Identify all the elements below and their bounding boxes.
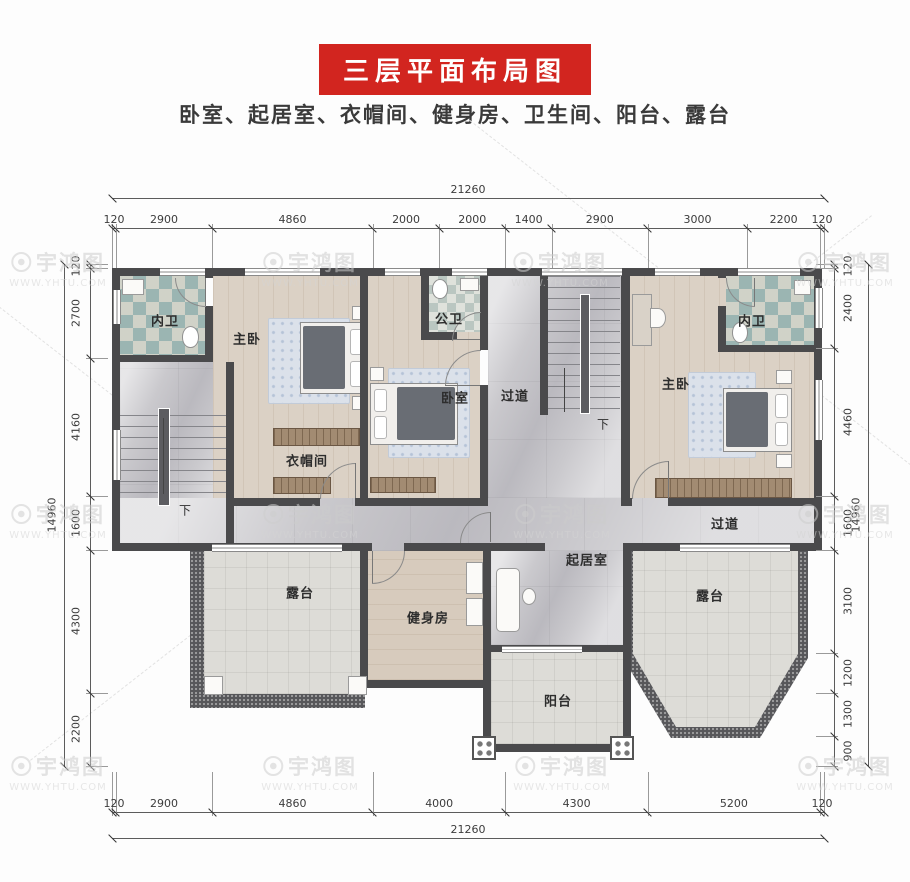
terrace-left-floor: [204, 551, 365, 694]
sink: [794, 280, 811, 295]
room-label-balcony: 阳台: [544, 691, 572, 710]
terrace-corner-post: [348, 676, 367, 695]
dim-label: 2000: [392, 213, 420, 226]
wardrobe: [273, 428, 360, 446]
room-label-hallway-vertical: 过道: [501, 386, 529, 405]
dim-label: 120: [812, 797, 833, 810]
room-label-terrace-left: 露台: [286, 583, 314, 602]
dim-label: 2400: [842, 294, 855, 322]
watermark-logo-icon: [11, 252, 31, 272]
room-label-bath-left: 内卫: [151, 311, 179, 330]
window: [160, 268, 205, 276]
dim-label: 120: [842, 255, 855, 276]
dim-label: 900: [842, 741, 855, 762]
decor: [754, 278, 755, 306]
dim-ext: [112, 224, 113, 268]
wall-segment: [355, 498, 488, 506]
dim-label: 3100: [842, 587, 855, 615]
dim-label: 21260: [451, 183, 486, 196]
dim-label: 2900: [150, 797, 178, 810]
room-label-public-bath: 公卫: [435, 309, 463, 328]
window: [212, 544, 342, 552]
decor: [726, 392, 768, 447]
wall-segment: [621, 268, 630, 498]
window: [815, 380, 823, 440]
decor: [374, 389, 387, 412]
stairs-left-arrow: [163, 418, 164, 494]
dim-line: [90, 264, 91, 766]
room-label-terrace-right: 露台: [696, 586, 724, 605]
window: [245, 268, 320, 276]
decor: [355, 463, 356, 498]
dim-ext: [648, 772, 649, 816]
wall-segment: [226, 498, 320, 506]
dim-ext: [820, 224, 821, 268]
wall-segment: [360, 551, 368, 688]
window: [680, 544, 790, 552]
dim-label: 4460: [842, 408, 855, 436]
sink: [122, 279, 144, 295]
dim-label: 21260: [451, 823, 486, 836]
balcony-column: [472, 736, 496, 760]
room-label-bedroom-mid: 卧室: [441, 388, 469, 407]
dim-label: 1400: [515, 213, 543, 226]
wall-segment: [360, 680, 491, 688]
decor: [490, 512, 491, 542]
dim-label: 4860: [278, 797, 306, 810]
dim-label: 120: [103, 797, 124, 810]
stairs-center-arrow: [564, 368, 565, 412]
dim-ext: [505, 772, 506, 816]
room-label-master-right: 主卧: [662, 374, 690, 393]
dim-label: 2900: [150, 213, 178, 226]
wall-segment: [421, 268, 429, 340]
nightstand: [370, 367, 384, 381]
dim-label: 5200: [720, 797, 748, 810]
dim-label: 2000: [458, 213, 486, 226]
dim-line: [112, 228, 824, 229]
dim-line: [64, 264, 65, 766]
decor: [205, 278, 206, 306]
dim-line: [834, 264, 835, 766]
terrace-left-parapet: [190, 551, 204, 708]
terrace-corner-post: [204, 676, 223, 695]
wall-segment: [483, 551, 491, 752]
wall-segment: [718, 345, 822, 352]
window: [655, 268, 700, 276]
terrace-left-parapet: [190, 694, 365, 708]
nightstand: [776, 454, 792, 468]
dim-line: [112, 198, 824, 199]
dim-line: [112, 838, 824, 839]
wall-segment: [368, 543, 372, 551]
room-label-master-left: 主卧: [233, 329, 261, 348]
window: [815, 288, 823, 328]
window: [738, 268, 800, 276]
dim-label: 1300: [842, 700, 855, 728]
sink: [460, 278, 479, 291]
chair: [650, 308, 666, 328]
wall-balcony-bottom: [483, 744, 631, 752]
dim-label: 2700: [70, 299, 83, 327]
window: [385, 268, 420, 276]
toilet: [182, 326, 199, 348]
dim-label: 4300: [70, 607, 83, 635]
wall-segment: [621, 498, 632, 506]
side-table: [522, 588, 536, 605]
sofa: [496, 568, 520, 632]
wall-segment: [718, 268, 726, 278]
wardrobe: [370, 477, 436, 493]
dim-label: 1200: [842, 659, 855, 687]
stairs-left-steps: [120, 415, 226, 503]
dim-label: 1600: [70, 509, 83, 537]
balcony-column: [610, 736, 634, 760]
dim-label: 3000: [683, 213, 711, 226]
dim-label: 14960: [850, 498, 863, 533]
wall-segment: [112, 543, 190, 551]
dim-strip-right: 12024004460160031001200130090014960: [826, 264, 890, 766]
dim-label: 120: [103, 213, 124, 226]
room-label-bath-right: 内卫: [738, 311, 766, 330]
bed-master-right: [723, 388, 792, 452]
decor: [668, 461, 669, 498]
wall-segment: [205, 268, 213, 278]
page-subtitle: 卧室、起居室、衣帽间、健身房、卫生间、阳台、露台: [179, 99, 731, 129]
page-title: 三层平面布局图: [319, 44, 591, 95]
dim-label: 14960: [46, 498, 59, 533]
room-label-living: 起居室: [566, 550, 608, 569]
wall-segment: [404, 543, 545, 551]
watermark-logo-icon: [11, 504, 31, 524]
decor: [372, 551, 373, 583]
wall-segment: [668, 498, 814, 506]
decor: [374, 416, 387, 439]
window: [542, 268, 622, 276]
dim-label: 120: [812, 213, 833, 226]
desk: [632, 294, 652, 346]
room-label-closet: 衣帽间: [286, 451, 328, 470]
stairs-left-down-label: 下: [179, 502, 191, 519]
wall-segment: [623, 652, 631, 744]
decor: [445, 385, 480, 386]
wall-segment: [540, 268, 548, 415]
wall-segment: [205, 306, 213, 362]
dim-label: 4300: [563, 797, 591, 810]
decor: [775, 422, 788, 446]
gym-equipment: [466, 562, 483, 594]
toilet: [432, 279, 448, 299]
dim-label: 2200: [70, 715, 83, 743]
dim-ext: [824, 224, 825, 268]
room-label-gym: 健身房: [407, 608, 449, 627]
dim-line: [868, 264, 869, 766]
window: [452, 268, 487, 276]
wall-segment: [623, 551, 631, 652]
window: [502, 646, 582, 653]
dim-ext: [212, 224, 213, 268]
dim-ext: [212, 772, 213, 816]
dim-strip-top: 1202900486020002000140029003000220012021…: [112, 178, 824, 242]
dim-label: 4860: [278, 213, 306, 226]
decor: [303, 326, 345, 389]
decor: WWW.YHTU.COM: [9, 782, 106, 793]
bed-master-left: [300, 322, 368, 394]
wall-segment: [718, 306, 726, 345]
window: [113, 290, 121, 324]
wall-segment: [226, 362, 234, 543]
decor: [452, 339, 480, 340]
wall-segment: [112, 355, 213, 362]
room-label-hallway-right: 过道: [711, 514, 739, 533]
dim-label: 4160: [70, 413, 83, 441]
gym-equipment: [466, 598, 483, 626]
floorplan-page: 三层平面布局图 卧室、起居室、衣帽间、健身房、卫生间、阳台、露台 1202900…: [0, 0, 910, 882]
stairs-center-rail: [580, 294, 590, 414]
stairs-center-down-label: 下: [597, 416, 609, 433]
wall-segment: [480, 385, 488, 498]
window: [113, 430, 121, 480]
watermark-logo-icon: [11, 756, 31, 776]
dim-strip-bottom: 1202900486040004300520012021260: [112, 782, 824, 852]
dim-label: 4000: [425, 797, 453, 810]
decor: [623, 543, 819, 739]
dim-label: 2900: [586, 213, 614, 226]
dim-ext: [373, 772, 374, 816]
nightstand: [776, 370, 792, 384]
dim-line: [112, 812, 824, 813]
wall-segment: [480, 268, 488, 350]
stairs-left-rail: [158, 408, 170, 506]
decor: [775, 394, 788, 418]
terrace-right-shape: [623, 543, 819, 739]
floor-plan: 内卫 主卧 衣帽间 公卫 卧室 过道 主卧 内卫 过道 起居室 健身房 露台 露…: [112, 268, 822, 762]
dim-label: 120: [70, 255, 83, 276]
wall-segment: [360, 268, 368, 498]
wardrobe: [655, 478, 792, 498]
dim-label: 2200: [770, 213, 798, 226]
dim-strip-left: 1202700416016004300220014960: [48, 264, 104, 766]
